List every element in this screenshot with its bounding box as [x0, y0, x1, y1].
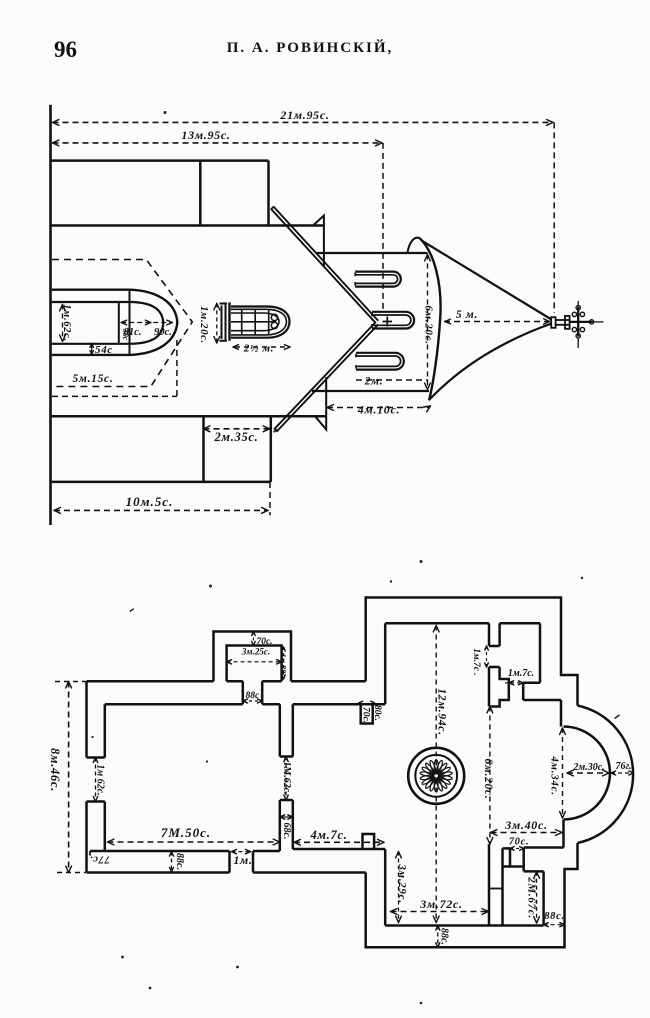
svg-text:3м.40с.: 3м.40с.	[504, 818, 547, 832]
svg-text:3м.29с.: 3м.29с.	[396, 863, 408, 903]
svg-text:2½ м.: 2½ м.	[243, 343, 274, 355]
svg-text:70с.: 70с.	[257, 637, 273, 647]
svg-text:4м.10с.: 4м.10с.	[357, 403, 400, 417]
svg-text:21м.95с.: 21м.95с.	[279, 108, 329, 122]
svg-text:81с.: 81с.	[124, 327, 142, 338]
svg-text:1м.62с.: 1м.62с.	[61, 304, 72, 342]
svg-text:2М.67с.: 2М.67с.	[526, 876, 538, 919]
svg-text:3м.72с.: 3м.72с.	[419, 897, 462, 911]
svg-text:13м.95с.: 13м.95с.	[181, 128, 230, 142]
svg-text:2м.35с.: 2м.35с.	[213, 430, 258, 444]
svg-text:4м.7с.: 4м.7с.	[309, 828, 347, 842]
svg-text:88с.: 88с.	[544, 911, 565, 922]
svg-text:П. А. РОВИНСКІЙ,: П. А. РОВИНСКІЙ,	[227, 39, 394, 56]
svg-text:1м.20с.: 1м.20с.	[198, 306, 209, 344]
svg-text:88c: 88c	[246, 691, 261, 701]
svg-text:6м.20с.: 6м.20с.	[482, 759, 494, 800]
svg-text:96: 96	[54, 37, 77, 62]
svg-text:5 м.: 5 м.	[456, 309, 478, 321]
svg-text:68с.: 68с.	[281, 823, 292, 840]
svg-text:77с.: 77с.	[89, 854, 110, 865]
svg-text:88с.: 88с.	[439, 928, 450, 945]
svg-text:2м.: 2м.	[364, 376, 384, 388]
svg-text:1м.7с .: 1м.7с .	[471, 648, 481, 675]
svg-text:1м 62с.: 1м 62с.	[95, 764, 106, 795]
svg-text:6м.20с.: 6м.20с.	[423, 305, 435, 344]
svg-text:76г.: 76г.	[615, 761, 631, 772]
svg-text:80с.: 80с.	[372, 705, 382, 721]
svg-text:70с.: 70с.	[509, 837, 530, 848]
svg-text:90с.: 90с.	[154, 327, 172, 338]
svg-text:1м.: 1м.	[233, 853, 252, 867]
svg-text:4м.34с.: 4м.34с.	[549, 755, 561, 795]
svg-text:1м.7с.: 1м.7с.	[508, 668, 534, 679]
svg-text:1м.88с.: 1м.88с.	[279, 653, 288, 678]
svg-text:8м.46с.: 8м.46с.	[48, 748, 62, 792]
svg-text:88с.: 88с.	[174, 853, 185, 870]
svg-text:2м.30с.: 2м.30с.	[572, 762, 604, 773]
svg-text:5м.15с.: 5м.15с.	[73, 373, 114, 385]
svg-text:10м.5с.: 10м.5с.	[126, 494, 174, 509]
svg-text:70c.: 70c.	[361, 707, 371, 723]
svg-text:1М.62с.: 1М.62с.	[281, 761, 292, 794]
svg-text:12м.94с.: 12м.94с.	[436, 688, 448, 735]
svg-text:3м.25с.: 3м.25с.	[241, 647, 270, 657]
svg-text:7М.50с.: 7М.50с.	[161, 825, 211, 840]
svg-text:54c: 54c	[95, 344, 113, 356]
